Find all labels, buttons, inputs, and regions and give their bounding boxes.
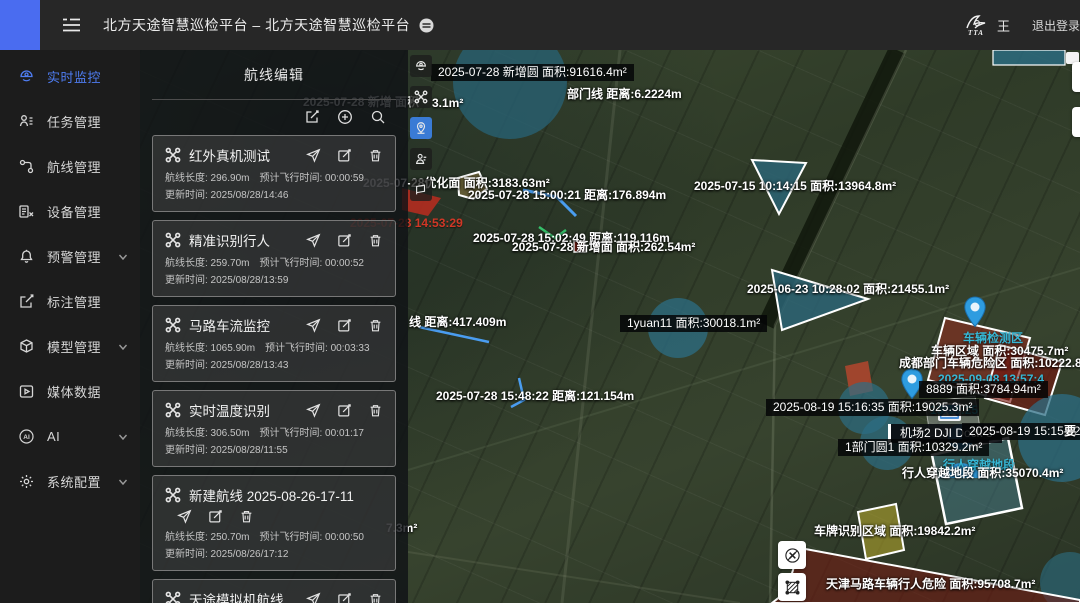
chevron-down-icon — [118, 432, 128, 442]
dome-camera-icon — [414, 59, 428, 73]
edit-route-button[interactable] — [337, 403, 352, 418]
drone-tool-button[interactable] — [410, 86, 432, 108]
drone-icon — [414, 90, 428, 104]
route-length: 航线长度: 259.70m — [165, 256, 249, 271]
route-card[interactable]: 天途模拟机航线 航线长度: 429.90m 预计飞行时间: 00:00:39 — [152, 579, 396, 603]
flag-icon — [414, 183, 428, 197]
sidebar-item-label: 模型管理 — [47, 337, 118, 356]
edit-route-button[interactable] — [337, 233, 352, 248]
sidebar-item-label: 系统配置 — [47, 472, 118, 491]
route-length: 航线长度: 250.70m — [165, 530, 249, 545]
sidebar-item-label: 航线管理 — [47, 157, 128, 176]
route-length: 航线长度: 1065.90m — [165, 341, 255, 356]
map-annotation: 1部门圆1 面积:10329.2m² — [838, 439, 989, 456]
switch-platform-icon — [419, 18, 434, 33]
route-updated: 更新时间: 2025/08/28/11:55 — [165, 443, 383, 458]
route-name: 精准识别行人 — [189, 230, 270, 250]
drone-icon — [165, 402, 181, 418]
title-badge-icon[interactable] — [419, 18, 434, 33]
no-fly-zone-button[interactable] — [778, 541, 806, 569]
fly-route-button[interactable] — [306, 592, 321, 603]
fly-route-button[interactable] — [306, 318, 321, 333]
map-annotation: 2025-07-15 10:14:15 面积:13964.8m² — [694, 179, 896, 194]
chevron-down-icon — [118, 477, 128, 487]
sidebar-item-route-management[interactable]: 航线管理 — [0, 144, 140, 189]
map-annotation: 1yuan11 面积:30018.1m² — [620, 315, 767, 332]
add-circle-icon[interactable] — [337, 109, 353, 125]
route-card[interactable]: 实时温度识别 航线长度: 306.50m 预计飞行时间: 00:01:17 更新… — [152, 390, 396, 467]
compose-icon[interactable] — [304, 109, 320, 125]
flag-tool-button[interactable] — [410, 179, 432, 201]
route-card[interactable]: 马路车流监控 航线长度: 1065.90m 预计飞行时间: 00:03:33 更… — [152, 305, 396, 382]
route-length: 航线长度: 306.50m — [165, 426, 249, 441]
logout-button[interactable]: 退出登录 — [1032, 17, 1080, 34]
person-tool-button[interactable] — [410, 148, 432, 170]
no-fly-zone-icon — [784, 547, 801, 564]
drone-icon — [165, 487, 181, 503]
user-name[interactable]: 王 — [997, 16, 1010, 35]
edit-route-button[interactable] — [337, 148, 352, 163]
location-pin-icon — [414, 121, 428, 135]
sidebar-item-ai[interactable]: AI AI — [0, 414, 140, 459]
route-card[interactable]: 新建航线 2025-08-26-17-11 航线长度: 250.70m 预计飞行… — [152, 475, 396, 571]
tta-logo-text: TTA — [968, 30, 984, 36]
search-icon[interactable] — [370, 109, 386, 125]
route-card[interactable]: 精准识别行人 航线长度: 259.70m 预计飞行时间: 00:00:52 更新… — [152, 220, 396, 297]
sidebar-item-system-config[interactable]: 系统配置 — [0, 459, 140, 504]
media-icon — [18, 383, 35, 400]
dome-camera-tool-button[interactable] — [410, 55, 432, 77]
menu-toggle-button[interactable] — [62, 17, 81, 33]
sidebar-item-media-data[interactable]: 媒体数据 — [0, 369, 140, 414]
map-zoom-out-button[interactable] — [1072, 107, 1080, 137]
drone-icon — [165, 232, 181, 248]
edit-route-button[interactable] — [337, 592, 352, 603]
map-annotation: 部门线 距离:6.2224m — [567, 87, 682, 102]
delete-route-button[interactable] — [368, 592, 383, 603]
fly-route-button[interactable] — [306, 403, 321, 418]
sidebar-item-task-management[interactable]: 任务管理 — [0, 99, 140, 144]
route-updated: 更新时间: 2025/08/28/14:46 — [165, 188, 383, 203]
hatched-area-button[interactable] — [778, 573, 806, 601]
drone-icon — [165, 591, 181, 603]
route-duration: 预计飞行时间: 00:01:17 — [259, 426, 363, 441]
edit-route-button[interactable] — [337, 318, 352, 333]
route-name: 天途模拟机航线 — [189, 589, 284, 603]
dome-camera-icon — [18, 68, 35, 85]
bell-icon — [18, 248, 35, 265]
fly-route-button[interactable] — [177, 509, 192, 524]
sidebar: 实时监控 任务管理 航线管理 设备管理 预警管理 — [0, 50, 140, 603]
app-window: 2025-07-28 新增圆 面积:91616.4m² 部门线 距离:6.222… — [0, 0, 1080, 603]
map-annotation: 成都部门车辆危险区 面积:10222.8m² — [899, 356, 1080, 371]
sidebar-item-label: 实时监控 — [47, 67, 128, 86]
hamburger-icon — [62, 17, 81, 33]
drone-icon — [165, 317, 181, 333]
fly-route-button[interactable] — [306, 233, 321, 248]
route-name: 新建航线 2025-08-26-17-11 — [189, 485, 354, 505]
route-name: 红外真机测试 — [189, 145, 270, 165]
route-duration: 预计飞行时间: 00:03:33 — [265, 341, 369, 356]
delete-route-button[interactable] — [239, 509, 254, 524]
brand-square — [0, 0, 40, 50]
map-annotation: 2025-07-28 15:00:21 距离:176.894m — [468, 188, 666, 203]
svg-text:AI: AI — [23, 434, 30, 441]
topbar: 北方天途智慧巡检平台 – 北方天途智慧巡检平台 TTA 王 退出登录 — [0, 0, 1080, 50]
drone-icon — [165, 147, 181, 163]
route-name: 马路车流监控 — [189, 315, 270, 335]
chevron-down-icon — [118, 342, 128, 352]
edit-route-button[interactable] — [208, 509, 223, 524]
map-annotation: 要 — [1064, 424, 1076, 439]
route-icon — [18, 158, 35, 175]
map-annotation: 2025-06-23 10:28:02 面积:21455.1m² — [747, 282, 949, 297]
sidebar-item-model-management[interactable]: 模型管理 — [0, 324, 140, 369]
sidebar-item-alert-management[interactable]: 预警管理 — [0, 234, 140, 279]
map-toolbar — [410, 55, 432, 201]
tta-bird-icon — [965, 14, 987, 30]
sidebar-item-label: 任务管理 — [47, 112, 128, 131]
delete-route-button[interactable] — [368, 233, 383, 248]
sidebar-item-label: 预警管理 — [47, 247, 118, 266]
sidebar-item-annotation-management[interactable]: 标注管理 — [0, 279, 140, 324]
hatched-area-icon — [784, 579, 801, 596]
page-title: 北方天途智慧巡检平台 – 北方天途智慧巡检平台 — [103, 15, 410, 35]
panel-toolbar — [140, 100, 408, 132]
map-annotation: 2025-08-19 15:16:35 面积:19025.3m² — [766, 399, 979, 416]
route-edit-panel: 航线编辑 红外真机测试 — [140, 50, 408, 603]
sidebar-item-label: 标注管理 — [47, 292, 128, 311]
route-updated: 更新时间: 2025/08/28/13:43 — [165, 358, 383, 373]
route-card-list: 红外真机测试 航线长度: 296.90m 预计飞行时间: 00:00:59 更新… — [140, 132, 408, 603]
map-annotation: 2025-07-28 15:48:22 距离:121.154m — [436, 389, 634, 404]
chevron-down-icon — [118, 252, 128, 262]
gear-icon — [18, 473, 35, 490]
sidebar-item-label: AI — [47, 429, 118, 444]
map-annotation: 2025-08-19 15:15:42 — [962, 423, 1080, 440]
route-name: 实时温度识别 — [189, 400, 270, 420]
route-duration: 预计飞行时间: 00:00:59 — [259, 171, 363, 186]
annotate-icon — [18, 293, 35, 310]
route-duration: 预计飞行时间: 00:00:50 — [259, 530, 363, 545]
delete-route-button[interactable] — [368, 403, 383, 418]
delete-route-button[interactable] — [368, 148, 383, 163]
map-annotation: 行人穿越地段 面积:35070.4m² — [902, 466, 1063, 481]
panel-title: 航线编辑 — [140, 50, 408, 99]
sidebar-item-realtime-monitor[interactable]: 实时监控 — [0, 54, 140, 99]
route-updated: 更新时间: 2025/08/28/13:59 — [165, 273, 383, 288]
map-annotation: 天津马路车辆行人危险 面积:95708.7m² — [826, 577, 1035, 592]
map-annotation: 3.1m² — [432, 96, 463, 111]
map-annotation: 2025-07-28 新增面 面积:262.54m² — [512, 240, 695, 255]
device-list-icon — [18, 203, 35, 220]
delete-route-button[interactable] — [368, 318, 383, 333]
map-zoom-in-button[interactable] — [1072, 62, 1080, 92]
sidebar-item-label: 媒体数据 — [47, 382, 128, 401]
fly-route-button[interactable] — [306, 148, 321, 163]
route-updated: 更新时间: 2025/08/26/17:12 — [165, 547, 383, 562]
route-card[interactable]: 红外真机测试 航线长度: 296.90m 预计飞行时间: 00:00:59 更新… — [152, 135, 396, 212]
sidebar-item-label: 设备管理 — [47, 202, 128, 221]
ai-icon: AI — [18, 428, 35, 445]
route-duration: 预计飞行时间: 00:00:52 — [259, 256, 363, 271]
map-annotation: 2025-07-28 新增圆 面积:91616.4m² — [431, 64, 634, 81]
tta-logo: TTA — [965, 14, 987, 36]
map-annotation: 线 距离:417.409m — [409, 315, 506, 330]
map-annotation: 车牌识别区域 面积:19842.2m² — [814, 524, 975, 539]
pin-tool-button[interactable] — [410, 117, 432, 139]
person-icon — [414, 152, 428, 166]
cube-icon — [18, 338, 35, 355]
route-length: 航线长度: 296.90m — [165, 171, 249, 186]
task-user-icon — [18, 113, 35, 130]
sidebar-item-device-management[interactable]: 设备管理 — [0, 189, 140, 234]
map-annotation: 8889 面积:3784.94m² — [919, 381, 1048, 398]
